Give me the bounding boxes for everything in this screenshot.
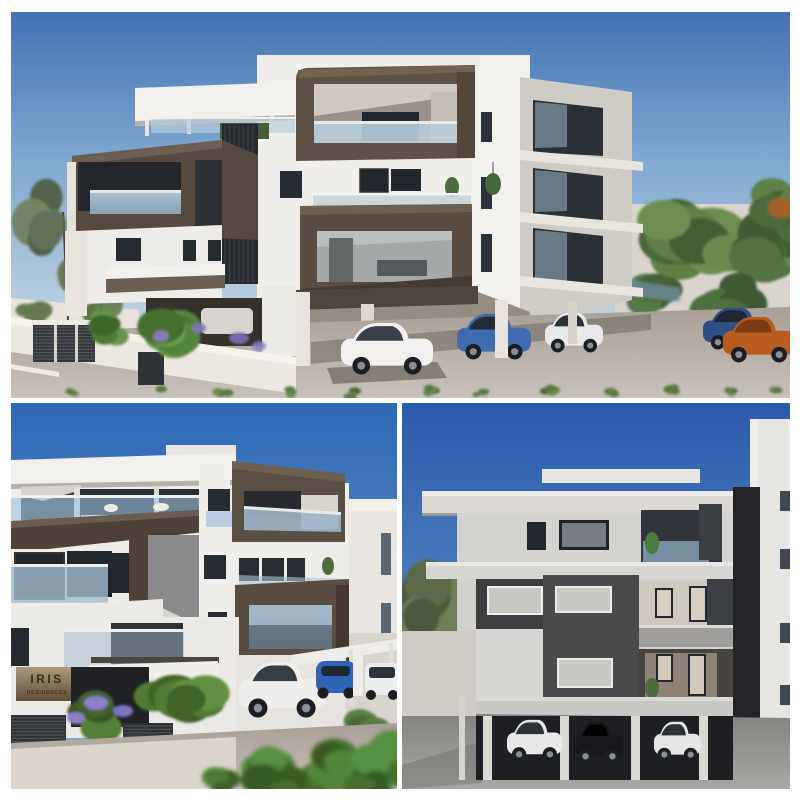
svg-text:RESIDENCES: RESIDENCES	[27, 690, 68, 696]
svg-text:IRIS: IRIS	[30, 672, 63, 686]
